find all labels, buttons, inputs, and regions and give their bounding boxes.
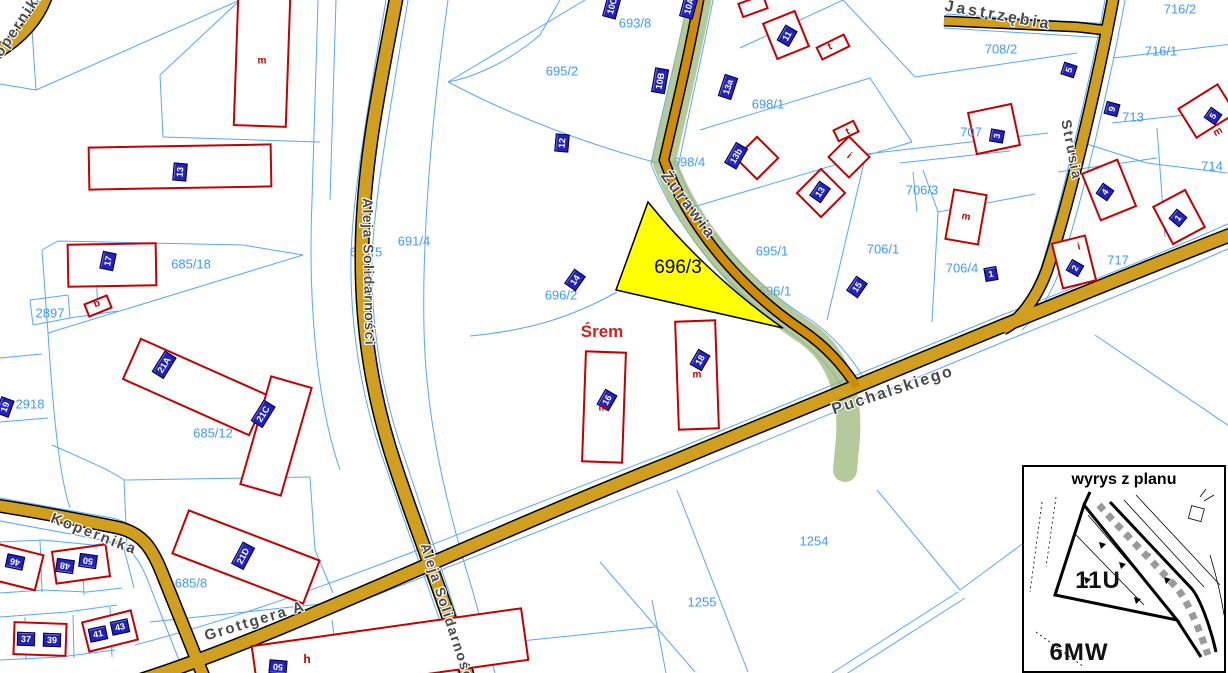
building-letter: t [826, 41, 834, 52]
parcel-label: 706/3 [906, 183, 939, 198]
parcel-label: 698/1 [752, 97, 785, 112]
house-number-plate: 15 [846, 276, 868, 299]
house-number-plate: 11 [777, 25, 798, 47]
plan-inset: wyrys z planu 11U [1022, 465, 1226, 673]
parcel-label: 693/8 [619, 16, 652, 31]
house-number-plate: 13 [172, 162, 188, 181]
street-label: Aleja Solidarności [417, 541, 478, 673]
building-letter: m [961, 211, 972, 224]
house-number-plate: 9 [1104, 101, 1121, 117]
house-number-plate: 17 [99, 251, 116, 272]
town-label: Śrem [581, 322, 624, 342]
house-number-plate: 5 [1204, 107, 1223, 126]
house-number-plate: 50 [268, 659, 287, 673]
parcel-label: 685/12 [193, 426, 233, 441]
zone-label-6mw: 6MW [1050, 639, 1109, 667]
house-number-plate: 21A [152, 351, 177, 379]
parcel-label: 1254 [800, 534, 829, 549]
building-letter: h [303, 652, 310, 666]
house-number-plate: 39 [43, 633, 61, 648]
cadastral-map-viewport[interactable]: 696/1691/5698/4 [0, 0, 1228, 673]
parcel-label: 717 [1107, 253, 1129, 268]
zone-label-11u: 11U [1075, 567, 1121, 595]
house-number-plate: 50 [78, 553, 98, 569]
parcel-label: 685/8 [175, 576, 208, 591]
parcel-label: 2918 [16, 397, 45, 412]
street-label: Jastrzębia [943, 0, 1053, 34]
street-label: Żurawia [656, 168, 719, 244]
parcel-label: 1255 [688, 595, 717, 610]
house-number-plate: 48 [55, 558, 75, 574]
street-label: Grottgera A [202, 598, 307, 645]
house-number-plate: 18 [689, 349, 710, 372]
house-number-plate: 19 [0, 396, 15, 418]
parcel-label: 716/1 [1145, 44, 1178, 59]
parcel-label: 685/18 [171, 257, 211, 272]
street-label: Puchalskiego [830, 363, 956, 419]
house-number-plate: 12 [554, 133, 570, 152]
parcel-label: 706/1 [867, 242, 900, 257]
parcel-label: 714 [1201, 159, 1223, 174]
parcel-label: 708/2 [985, 42, 1018, 57]
building-letter: b [92, 298, 102, 310]
street-label: Kopernika [0, 0, 49, 71]
building-letter: m [599, 403, 608, 414]
house-number-plate: 4 [1096, 183, 1115, 202]
parcel-label: 695/1 [756, 244, 789, 259]
house-number-plate: 5 [1060, 62, 1077, 79]
house-number-plate: 10A [679, 0, 699, 20]
parcel-label: 2897 [36, 306, 65, 321]
parcel-label: 695/2 [546, 64, 579, 79]
parcel-label: 691/4 [398, 234, 431, 249]
building-letter: i [1076, 241, 1082, 252]
parcel-label: 713 [1122, 110, 1144, 125]
parcel-label: 707 [960, 125, 982, 140]
house-number-plate: 37 [17, 632, 35, 647]
building-letter: t [844, 126, 852, 137]
house-number-plate: 1 [1168, 209, 1187, 228]
house-number-plate: 46 [5, 553, 26, 570]
house-number-plate: 1 [983, 266, 998, 282]
house-number-plate: 21C [251, 400, 276, 428]
house-number-plate: 3 [989, 128, 1005, 143]
parcel-label: 716/2 [1164, 2, 1197, 17]
building-letter: m [693, 370, 702, 381]
house-number-plate: 21D [231, 542, 255, 570]
street-label: Aleja Solidarności [360, 198, 379, 347]
building-letter: m [258, 56, 267, 67]
house-number-plate: 13a [718, 74, 738, 100]
highlighted-parcel-number: 696/3 [654, 257, 702, 279]
house-number-plate: 13b [724, 142, 748, 169]
house-number-plate: 10B [651, 68, 669, 95]
house-number-plate: 41 [88, 625, 109, 642]
parcel-label: 706/4 [946, 261, 979, 276]
street-label: Kopernika [48, 510, 139, 559]
house-number-plate: 13 [809, 181, 831, 204]
building-letter: i [844, 151, 853, 161]
street-label: Strusia [1058, 118, 1085, 181]
house-number-plate: 2 [1066, 259, 1085, 277]
building-letter: m [1211, 125, 1224, 139]
house-number-plate: 43 [110, 618, 131, 635]
